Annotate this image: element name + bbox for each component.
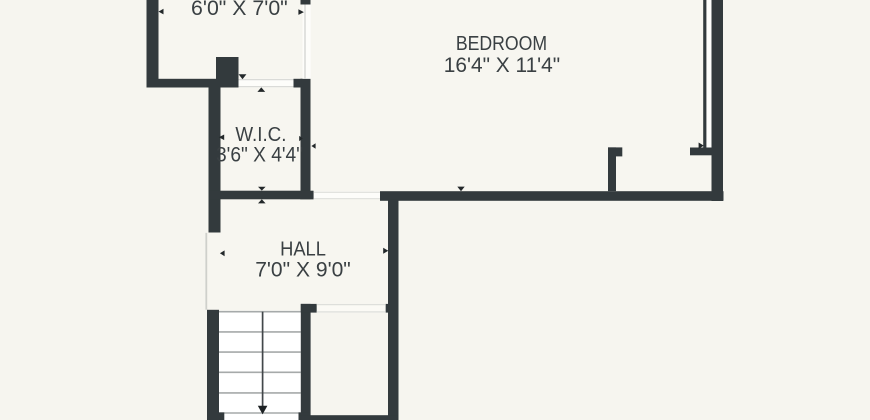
svg-text:7'0" X 9'0": 7'0" X 9'0"	[255, 258, 351, 282]
svg-text:3'6" X 4'4": 3'6" X 4'4"	[216, 143, 303, 167]
svg-text:BEDROOM: BEDROOM	[456, 33, 547, 55]
svg-text:6'0" X 7'0": 6'0" X 7'0"	[191, 0, 288, 20]
svg-text:16'4" X 11'4": 16'4" X 11'4"	[444, 53, 560, 77]
